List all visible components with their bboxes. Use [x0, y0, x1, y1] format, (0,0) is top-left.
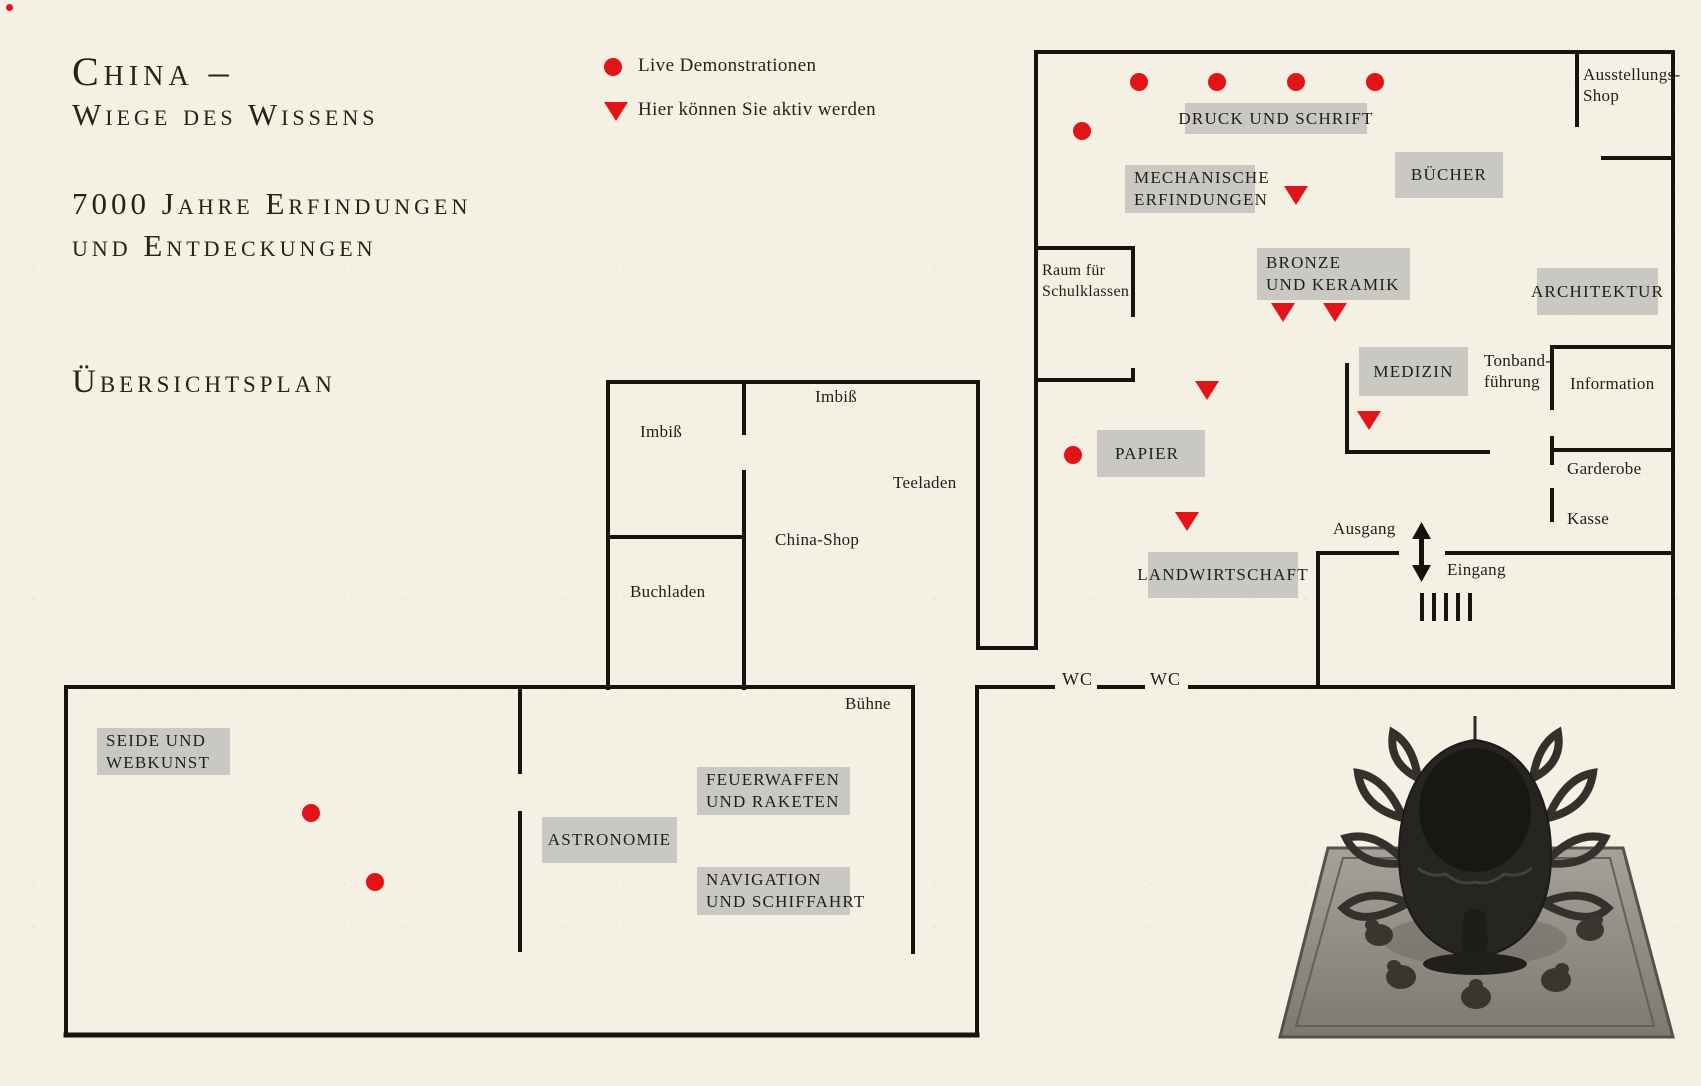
active-station-triangle: [1271, 303, 1295, 322]
turnstile-ticks: [1420, 593, 1472, 621]
active-station-triangle: [1323, 303, 1347, 322]
entrance-arrow: [1412, 522, 1431, 582]
room-label-bronze: BRONZEUND KERAMIK: [1257, 248, 1410, 300]
room-label-buecher: BÜCHER: [1395, 152, 1503, 198]
room-label-garderobe: Garderobe: [1567, 459, 1641, 479]
room-label-teeladen: Teeladen: [893, 473, 957, 493]
room-label-schulklassen: Raum fürSchulklassen: [1042, 260, 1129, 302]
active-station-triangle: [1175, 512, 1199, 531]
label-wc-2: WC: [1146, 669, 1185, 690]
label-tonbandfuehrung: Tonband-führung: [1484, 350, 1551, 392]
room-label-feuerwaffen: FEUERWAFFENUND RAKETEN: [697, 767, 850, 815]
active-station-triangle: [1357, 411, 1381, 430]
live-demo-dot: [302, 804, 320, 822]
active-station-triangle: [1195, 381, 1219, 400]
room-label-landwirtschaft: LANDWIRTSCHAFT: [1148, 552, 1298, 598]
room-label-china-shop: China-Shop: [775, 530, 859, 550]
label-ausgang: Ausgang: [1333, 519, 1396, 539]
room-label-buchladen: Buchladen: [630, 582, 705, 602]
room-label-papier: PAPIER: [1097, 430, 1205, 477]
room-label-astronomie: ASTRONOMIE: [542, 817, 677, 863]
live-demo-dot: [366, 873, 384, 891]
room-label-imbiss-top: Imbiß: [815, 387, 857, 407]
live-demo-dot: [1287, 73, 1305, 91]
exhibit-photo: [1280, 716, 1673, 1037]
room-label-druck: DRUCK UND SCHRIFT: [1185, 103, 1367, 134]
room-label-imbiss-left: Imbiß: [640, 422, 682, 442]
room-label-ausstellungsshop: Ausstellungs-Shop: [1583, 64, 1680, 106]
room-label-architektur: ARCHITEKTUR: [1537, 268, 1658, 315]
room-label-kasse: Kasse: [1567, 509, 1609, 529]
live-demo-dot: [1130, 73, 1148, 91]
label-eingang: Eingang: [1447, 560, 1506, 580]
room-label-buehne: Bühne: [845, 694, 891, 714]
room-label-information: Information: [1570, 374, 1655, 394]
active-station-triangle: [1284, 186, 1308, 205]
room-label-mechanische: MECHANISCHEERFINDUNGEN: [1125, 165, 1255, 213]
brochure-page: China – Wiege des Wissens 7000 Jahre Erf…: [0, 0, 1701, 1086]
label-wc-1: WC: [1058, 669, 1097, 690]
room-label-medizin: MEDIZIN: [1359, 347, 1468, 396]
live-demo-dot: [1064, 446, 1082, 464]
live-demo-dot: [1073, 122, 1091, 140]
live-demo-dot: [1366, 73, 1384, 91]
room-label-seide: SEIDE UNDWEBKUNST: [97, 728, 230, 775]
live-demo-dot: [1208, 73, 1226, 91]
room-label-navigation: NAVIGATIONUND SCHIFFAHRT: [697, 867, 850, 915]
